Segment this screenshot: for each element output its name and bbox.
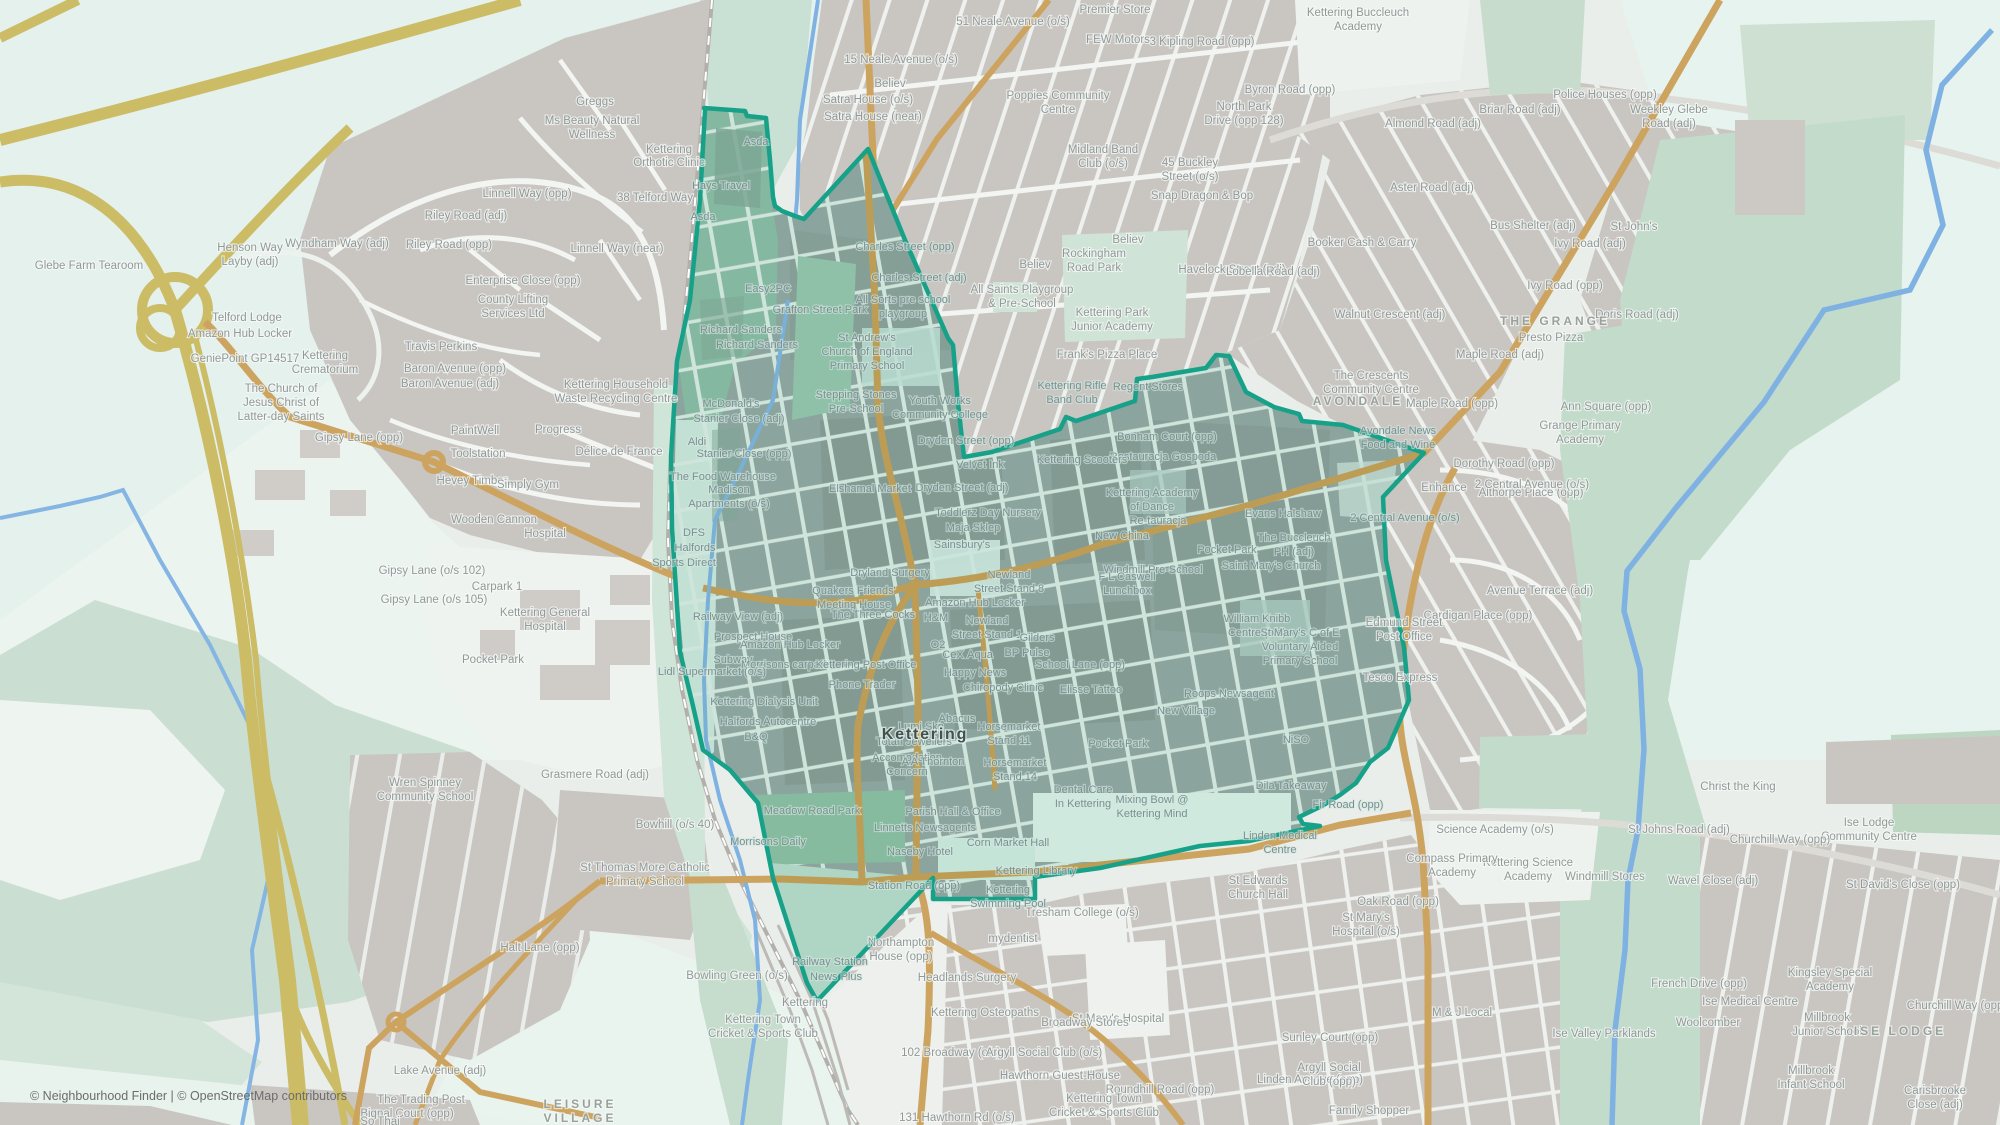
svg-text:Wellness: Wellness (569, 129, 616, 141)
svg-text:North Park: North Park (1217, 101, 1272, 113)
svg-text:Post Office: Post Office (1376, 631, 1432, 643)
svg-text:Gipsy Lane (o/s 105): Gipsy Lane (o/s 105) (381, 594, 488, 606)
svg-text:Oak Road (opp): Oak Road (opp) (1357, 896, 1439, 908)
svg-text:Windmill Stores: Windmill Stores (1565, 871, 1645, 883)
svg-text:Club (opp): Club (opp) (1302, 1076, 1356, 1088)
svg-text:F L Caswell: F L Caswell (1098, 571, 1155, 583)
svg-text:Halt Lane (opp): Halt Lane (opp) (500, 942, 579, 954)
svg-text:Infant School: Infant School (1777, 1079, 1844, 1091)
svg-text:Satra House (o/s): Satra House (o/s) (823, 94, 913, 106)
svg-text:St John's: St John's (1611, 221, 1658, 233)
svg-text:McDonald's: McDonald's (702, 398, 760, 410)
svg-text:Frank's Pizza Place: Frank's Pizza Place (1057, 349, 1158, 361)
svg-text:Kettering: Kettering (882, 726, 968, 743)
svg-text:Drive (opp 128): Drive (opp 128) (1204, 115, 1283, 127)
svg-text:Dila Takeaway: Dila Takeaway (1256, 780, 1327, 792)
svg-text:Club (o/s): Club (o/s) (1078, 158, 1128, 170)
svg-text:Carisbrooke: Carisbrooke (1904, 1085, 1966, 1097)
svg-text:Kettering Post Office: Kettering Post Office (816, 659, 917, 671)
svg-text:Cricket & Sports Club: Cricket & Sports Club (708, 1028, 818, 1040)
svg-text:Sunley Court (opp): Sunley Court (opp) (1282, 1032, 1379, 1044)
svg-text:The Church of: The Church of (245, 383, 319, 395)
svg-text:38 Telford Way: 38 Telford Way (617, 192, 693, 204)
svg-text:Gipsy Lane (o/s 102): Gipsy Lane (o/s 102) (379, 565, 486, 577)
svg-text:Ise Lodge: Ise Lodge (1844, 817, 1895, 829)
svg-text:mydentist: mydentist (988, 933, 1038, 945)
svg-text:Lake Avenue (adj): Lake Avenue (adj) (394, 1065, 487, 1077)
svg-text:Kettering General: Kettering General (500, 607, 590, 619)
svg-text:Premier Store: Premier Store (1080, 4, 1151, 16)
svg-text:Swimming Pool: Swimming Pool (970, 898, 1046, 910)
svg-text:Amazon Hub Locker: Amazon Hub Locker (188, 328, 292, 340)
svg-text:Roops Newsagent: Roops Newsagent (1184, 688, 1274, 700)
svg-text:Centre: Centre (1041, 104, 1076, 116)
svg-text:Walnut Crescent (adj): Walnut Crescent (adj) (1335, 309, 1446, 321)
svg-text:Quakers Friends': Quakers Friends' (812, 585, 895, 597)
svg-text:Headlands Surgery: Headlands Surgery (918, 972, 1017, 984)
svg-text:Services Ltd: Services Ltd (481, 308, 544, 320)
svg-text:Newland: Newland (966, 615, 1009, 627)
svg-text:Believ: Believ (1112, 234, 1144, 246)
svg-text:Close (adj): Close (adj) (1907, 1099, 1963, 1111)
svg-text:Dryden Street (opp): Dryden Street (opp) (918, 435, 1015, 447)
svg-text:Ise Medical Centre: Ise Medical Centre (1702, 996, 1798, 1008)
svg-text:Hays Travel: Hays Travel (692, 180, 750, 192)
svg-text:Churchill Way (opp): Churchill Way (opp) (1730, 834, 1831, 846)
svg-text:Ivy Road (adj): Ivy Road (adj) (1554, 238, 1626, 250)
svg-text:Gipsy Lane (opp): Gipsy Lane (opp) (315, 432, 403, 444)
svg-text:St Mary's: St Mary's (1342, 912, 1390, 924)
svg-text:Hospital: Hospital (524, 621, 566, 633)
svg-text:Stanier Close (adj): Stanier Close (adj) (693, 413, 784, 425)
svg-text:Simply Gym: Simply Gym (497, 479, 559, 491)
svg-text:William Knibb: William Knibb (1224, 613, 1291, 625)
svg-text:Kettering Scooters: Kettering Scooters (1037, 454, 1128, 466)
svg-text:Wyndham Way (adj): Wyndham Way (adj) (285, 238, 389, 250)
svg-text:Glebe Farm Tearoom: Glebe Farm Tearoom (35, 260, 143, 272)
svg-text:Argyll Social Club (o/s): Argyll Social Club (o/s) (986, 1047, 1102, 1059)
svg-text:Weekley Glebe: Weekley Glebe (1630, 104, 1708, 116)
svg-text:Aqua: Aqua (967, 649, 994, 661)
svg-text:Church of England: Church of England (821, 346, 912, 358)
svg-text:Happy News: Happy News (944, 667, 1007, 679)
svg-text:Naseby Hotel: Naseby Hotel (887, 846, 953, 858)
svg-text:2 Central Avenue (o/s): 2 Central Avenue (o/s) (1475, 479, 1589, 491)
svg-text:Ms Beauty Natural: Ms Beauty Natural (545, 115, 640, 127)
svg-text:51 Neale Avenue (o/s): 51 Neale Avenue (o/s) (956, 16, 1070, 28)
svg-text:Argyll Social: Argyll Social (1297, 1062, 1360, 1074)
svg-text:Believ: Believ (874, 78, 906, 90)
svg-text:The Crescents: The Crescents (1334, 370, 1409, 382)
svg-text:Kettering: Kettering (986, 884, 1030, 896)
svg-text:Halfords: Halfords (675, 542, 716, 554)
svg-text:Toolstation: Toolstation (451, 448, 506, 460)
svg-text:Believ: Believ (1019, 259, 1051, 271)
svg-text:Hospital: Hospital (524, 528, 566, 540)
svg-text:Academy: Academy (1504, 871, 1552, 883)
svg-text:Church Hall: Church Hall (1228, 889, 1288, 901)
svg-text:Midland Band: Midland Band (1068, 144, 1138, 156)
svg-text:Halfords Autocentre: Halfords Autocentre (720, 716, 817, 728)
svg-text:& Pre-School: & Pre-School (988, 298, 1056, 310)
svg-text:Avenue Terrace (adj): Avenue Terrace (adj) (1487, 585, 1594, 597)
svg-text:Orthotic Clinic: Orthotic Clinic (633, 157, 705, 169)
svg-text:Snap Dragon & Bop: Snap Dragon & Bop (1151, 190, 1253, 202)
svg-text:St Andrew's: St Andrew's (838, 332, 896, 344)
svg-text:Poppies Community: Poppies Community (1007, 90, 1110, 102)
svg-text:Presto Pizza: Presto Pizza (1519, 332, 1584, 344)
svg-text:Linnell Way (near): Linnell Way (near) (571, 243, 664, 255)
svg-text:St Edwards: St Edwards (1229, 875, 1288, 887)
svg-text:Pre-School: Pre-School (829, 403, 883, 415)
svg-text:Easy2PC: Easy2PC (745, 283, 791, 295)
svg-text:BP Pulse: BP Pulse (1004, 647, 1049, 659)
svg-text:Chiropody Clinic: Chiropody Clinic (963, 682, 1044, 694)
svg-text:Road Park: Road Park (1067, 262, 1122, 274)
svg-text:Street Stand 1: Street Stand 1 (952, 629, 1022, 641)
svg-text:Youth Works: Youth Works (909, 395, 971, 407)
svg-text:New China: New China (1095, 530, 1150, 542)
svg-text:CeX: CeX (942, 649, 964, 661)
svg-text:Grafton Street Park: Grafton Street Park (773, 304, 868, 316)
svg-text:Grasmere Road (adj): Grasmere Road (adj) (541, 769, 649, 781)
svg-text:Bonham Court (opp): Bonham Court (opp) (1117, 431, 1217, 443)
svg-text:Broadway Stores: Broadway Stores (1041, 1017, 1129, 1029)
svg-text:News Plus: News Plus (810, 971, 862, 983)
svg-text:15 Neale Avenue (o/s): 15 Neale Avenue (o/s) (844, 54, 958, 66)
svg-text:Asda: Asda (690, 211, 716, 223)
svg-text:Hawthorn Guest-House: Hawthorn Guest-House (1000, 1070, 1120, 1082)
svg-text:Bowling Green (o/s): Bowling Green (o/s) (686, 970, 788, 982)
svg-text:Aldi: Aldi (688, 436, 706, 448)
svg-text:Travis Perkins: Travis Perkins (405, 341, 478, 353)
svg-text:Street Stand 8: Street Stand 8 (974, 583, 1044, 595)
svg-text:Sainsbury's: Sainsbury's (934, 539, 991, 551)
svg-text:Apartments (o/s): Apartments (o/s) (688, 498, 769, 510)
svg-text:Millbrook: Millbrook (1788, 1065, 1834, 1077)
svg-text:Corn Market Hall: Corn Market Hall (967, 837, 1050, 849)
svg-text:Kettering Rifle: Kettering Rifle (1037, 380, 1106, 392)
svg-text:Lunchbox: Lunchbox (1103, 585, 1151, 597)
svg-text:Grange Primary: Grange Primary (1539, 420, 1620, 432)
svg-text:Henson Way: Henson Way (217, 242, 283, 254)
svg-text:Lobella Road (adj): Lobella Road (adj) (1226, 266, 1320, 278)
svg-text:Street (o/s): Street (o/s) (1162, 171, 1219, 183)
svg-text:Community School: Community School (377, 791, 474, 803)
svg-text:Amazon Hub Locker: Amazon Hub Locker (740, 639, 840, 651)
svg-text:Baron Avenue (opp): Baron Avenue (opp) (404, 363, 506, 375)
svg-text:Wooden Cannon: Wooden Cannon (451, 514, 537, 526)
svg-text:Compass Primary: Compass Primary (1406, 853, 1498, 865)
svg-text:Kettering Osteopaths: Kettering Osteopaths (931, 1007, 1039, 1019)
svg-text:County Lifting: County Lifting (478, 294, 548, 306)
svg-text:Carpark 1: Carpark 1 (472, 581, 523, 593)
svg-text:House (opp): House (opp) (869, 951, 932, 963)
svg-text:Abacus: Abacus (939, 713, 976, 725)
svg-text:Horsemarket: Horsemarket (978, 721, 1041, 733)
svg-text:All Sorts pre school: All Sorts pre school (856, 294, 951, 306)
svg-text:Stepping Stones: Stepping Stones (816, 389, 897, 401)
svg-text:Aster Road (adj): Aster Road (adj) (1390, 182, 1474, 194)
svg-text:Maja Sklep: Maja Sklep (946, 522, 1000, 534)
svg-text:Almond Road (adj): Almond Road (adj) (1385, 118, 1481, 130)
svg-text:Kettering: Kettering (646, 144, 692, 156)
svg-text:Morrisons Daily: Morrisons Daily (730, 836, 806, 848)
svg-text:Progress: Progress (535, 424, 581, 436)
svg-text:FEW Motors: FEW Motors (1086, 34, 1150, 46)
svg-text:St David's Close (opp): St David's Close (opp) (1846, 879, 1960, 891)
svg-text:French Drive (opp): French Drive (opp) (1651, 978, 1747, 990)
svg-text:The Food Warehouse: The Food Warehouse (670, 471, 776, 483)
svg-text:St Johns Road (adj): St Johns Road (adj) (1628, 824, 1730, 836)
svg-text:Dental Care: Dental Care (1054, 784, 1113, 796)
svg-text:Baron Avenue (adj): Baron Avenue (adj) (401, 378, 499, 390)
svg-text:PaintWell: PaintWell (451, 425, 499, 437)
svg-text:Velvet Ink: Velvet Ink (956, 459, 1004, 471)
svg-text:Wren Spinney: Wren Spinney (389, 777, 461, 789)
svg-text:M & J Local: M & J Local (1432, 1007, 1492, 1019)
svg-text:Stand 11: Stand 11 (987, 735, 1030, 747)
svg-text:45 Buckley: 45 Buckley (1162, 157, 1219, 169)
svg-text:Charles Street (adj): Charles Street (adj) (871, 272, 966, 284)
svg-text:Horsemarket: Horsemarket (984, 757, 1047, 769)
svg-text:Railway Station: Railway Station (792, 956, 868, 968)
svg-text:Academy: Academy (1334, 21, 1382, 33)
svg-text:Edmund Street: Edmund Street (1366, 617, 1444, 629)
svg-text:Bus Shelter (adj): Bus Shelter (adj) (1490, 220, 1576, 232)
svg-text:Enhance: Enhance (1421, 482, 1466, 494)
svg-text:Junior School: Junior School (1792, 1026, 1862, 1038)
svg-text:Booker Cash & Carry: Booker Cash & Carry (1308, 237, 1417, 249)
svg-text:New Village: New Village (1157, 705, 1215, 717)
svg-text:Millbrook: Millbrook (1804, 1012, 1850, 1024)
svg-text:THE GRANGE: THE GRANGE (1500, 314, 1610, 328)
svg-text:Band Club: Band Club (1046, 394, 1097, 406)
svg-text:Voluntary Aided: Voluntary Aided (1262, 641, 1338, 653)
svg-text:Kettering Mind: Kettering Mind (1117, 808, 1188, 820)
svg-text:of Dance: of Dance (1130, 501, 1174, 513)
svg-text:Science Academy (o/s): Science Academy (o/s) (1436, 824, 1554, 836)
svg-text:Northampton: Northampton (868, 937, 934, 949)
svg-text:Primary School: Primary School (1263, 655, 1338, 667)
svg-text:Kingsley Special: Kingsley Special (1788, 967, 1872, 979)
svg-text:AVONDALE: AVONDALE (1313, 394, 1403, 408)
svg-text:Saint Mary's Church: Saint Mary's Church (1222, 560, 1321, 572)
svg-text:Maple Road (opp): Maple Road (opp) (1406, 398, 1498, 410)
svg-text:H&M: H&M (924, 612, 948, 624)
svg-text:Wavel Close (adj): Wavel Close (adj) (1668, 875, 1758, 887)
svg-text:131 Hawthorn Rd (o/s): 131 Hawthorn Rd (o/s) (899, 1112, 1015, 1124)
svg-text:Parish Hall & Office: Parish Hall & Office (905, 806, 1000, 818)
svg-text:Kettering: Kettering (782, 997, 828, 1009)
svg-text:The Trading Post: The Trading Post (377, 1094, 465, 1106)
svg-text:Kettering Household: Kettering Household (564, 379, 668, 391)
svg-text:LEISURE: LEISURE (543, 1097, 616, 1111)
svg-text:Academy: Academy (1428, 867, 1476, 879)
svg-text:Satra House (near): Satra House (near) (824, 111, 922, 123)
svg-text:Kettering Buccleuch: Kettering Buccleuch (1307, 7, 1409, 19)
svg-text:Churchill Way (opp): Churchill Way (opp) (1907, 1000, 2000, 1012)
svg-text:Sports Direct: Sports Direct (652, 557, 716, 569)
svg-text:Telford Lodge: Telford Lodge (212, 312, 282, 324)
svg-text:Tesco Express: Tesco Express (1363, 672, 1438, 684)
svg-text:Greggs: Greggs (576, 96, 614, 108)
svg-text:Academy: Academy (1806, 981, 1854, 993)
svg-text:Regent Stores: Regent Stores (1113, 381, 1184, 393)
svg-text:Latter-day Saints: Latter-day Saints (238, 411, 325, 423)
svg-text:Dryden Street (adj): Dryden Street (adj) (916, 482, 1009, 494)
svg-text:Bowhill (o/s 40): Bowhill (o/s 40) (636, 819, 715, 831)
svg-text:Centre: Centre (1263, 844, 1296, 856)
svg-text:Stanier Close (opp): Stanier Close (opp) (697, 448, 792, 460)
svg-text:Jesus Christ of: Jesus Christ of (243, 397, 320, 409)
svg-text:Pocket Park: Pocket Park (1197, 544, 1257, 556)
svg-text:Kettering Park: Kettering Park (1076, 307, 1149, 319)
svg-text:Kettering Town: Kettering Town (725, 1014, 801, 1026)
svg-text:NiSO: NiSO (1283, 734, 1310, 746)
svg-text:Enterprise Close (opp): Enterprise Close (opp) (465, 275, 580, 287)
svg-text:All Saints Playgroup: All Saints Playgroup (971, 284, 1074, 296)
svg-text:Fir Road (opp): Fir Road (opp) (1313, 799, 1384, 811)
svg-text:Crematorium: Crematorium (292, 364, 358, 376)
svg-text:2 Central Avenue (o/s): 2 Central Avenue (o/s) (1350, 512, 1459, 524)
svg-text:Family Shopper: Family Shopper (1329, 1105, 1410, 1117)
svg-text:Richard Sanders: Richard Sanders (700, 324, 782, 336)
svg-text:Briar Road (adj): Briar Road (adj) (1479, 104, 1560, 116)
svg-text:Lidl Supermarket (o/s): Lidl Supermarket (o/s) (658, 666, 766, 678)
svg-text:A A Thornton: A A Thornton (902, 756, 965, 768)
svg-text:So Thai: So Thai (360, 1116, 399, 1125)
svg-text:Byron Road (opp): Byron Road (opp) (1245, 84, 1336, 96)
svg-text:Kettering: Kettering (302, 350, 348, 362)
svg-text:Amazon Hub Locker: Amazon Hub Locker (925, 597, 1025, 609)
svg-text:Pocket Park: Pocket Park (1088, 738, 1148, 750)
svg-text:St Mary's C of E: St Mary's C of E (1260, 627, 1339, 639)
svg-text:Avondale News: Avondale News (1360, 425, 1437, 437)
svg-text:Rockingham: Rockingham (1062, 248, 1126, 260)
svg-text:Kettering Academy: Kettering Academy (1106, 487, 1199, 499)
svg-text:Kettering Dialysis Unit: Kettering Dialysis Unit (710, 696, 818, 708)
svg-text:Hospital (o/s): Hospital (o/s) (1332, 926, 1400, 938)
svg-text:Mixing Bowl @: Mixing Bowl @ (1116, 794, 1189, 806)
svg-text:Woolcomber: Woolcomber (1676, 1017, 1741, 1029)
svg-text:Linnetts Newsagents: Linnetts Newsagents (874, 822, 977, 834)
svg-text:The Buccleuch: The Buccleuch (1258, 532, 1331, 544)
svg-text:In Kettering: In Kettering (1055, 798, 1111, 810)
svg-text:School Lane (opp): School Lane (opp) (1035, 659, 1125, 671)
svg-text:Ise Valley Parklands: Ise Valley Parklands (1552, 1028, 1656, 1040)
svg-text:Police Houses (opp): Police Houses (opp) (1553, 89, 1657, 101)
svg-text:Toddlerz Day Nursery: Toddlerz Day Nursery (935, 507, 1041, 519)
svg-text:Evans Halshaw: Evans Halshaw (1245, 508, 1321, 520)
svg-text:Community Centre: Community Centre (1821, 831, 1917, 843)
svg-text:Délice de France: Délice de France (576, 446, 663, 458)
svg-text:Elisse Tattoo: Elisse Tattoo (1060, 684, 1122, 696)
svg-text:Dorothy Road (opp): Dorothy Road (opp) (1454, 458, 1555, 470)
svg-text:Maple Road (adj): Maple Road (adj) (1456, 349, 1544, 361)
svg-text:Station Road (opp): Station Road (opp) (868, 880, 960, 892)
svg-text:Kettering Library: Kettering Library (996, 865, 1077, 877)
svg-text:Academy: Academy (1556, 434, 1604, 446)
svg-text:Ivy Road (opp): Ivy Road (opp) (1527, 280, 1603, 292)
svg-text:Ann Square (opp): Ann Square (opp) (1561, 401, 1652, 413)
svg-text:Charles Street (opp): Charles Street (opp) (855, 241, 954, 253)
svg-text:Kettering Town: Kettering Town (1066, 1093, 1142, 1105)
svg-text:Primary School: Primary School (606, 876, 684, 888)
svg-text:Gilders: Gilders (1020, 632, 1055, 644)
svg-text:Road (adj): Road (adj) (1642, 118, 1696, 130)
svg-text:Christ the King: Christ the King (1700, 781, 1775, 793)
svg-text:Phone Trader: Phone Trader (829, 679, 896, 691)
svg-text:playgroup: playgroup (879, 308, 927, 320)
svg-text:Linden Medical: Linden Medical (1243, 830, 1317, 842)
svg-text:The Three Cocks: The Three Cocks (831, 609, 916, 621)
svg-text:Newland: Newland (988, 569, 1031, 581)
svg-text:© Neighbourhood Finder | © Ope: © Neighbourhood Finder | © OpenStreetMap… (30, 1089, 347, 1103)
svg-text:Food and Wine: Food and Wine (1361, 439, 1436, 451)
svg-text:B&Q: B&Q (744, 731, 768, 743)
svg-text:Stand 14: Stand 14 (993, 771, 1037, 783)
svg-text:Primary School: Primary School (830, 360, 905, 372)
svg-text:Layby (adj): Layby (adj) (222, 256, 279, 268)
svg-text:Junior Academy: Junior Academy (1071, 321, 1153, 333)
svg-text:VILLAGE: VILLAGE (543, 1111, 616, 1125)
svg-text:Linnell Way (opp): Linnell Way (opp) (482, 188, 571, 200)
svg-text:Cricket & Sports Club: Cricket & Sports Club (1049, 1107, 1159, 1119)
svg-text:Meadow Road Park: Meadow Road Park (764, 805, 861, 817)
svg-text:Asda: Asda (743, 136, 769, 148)
svg-text:Pocket Park: Pocket Park (462, 654, 524, 666)
svg-text:Community College: Community College (892, 409, 988, 421)
svg-text:Elshamal Market: Elshamal Market (829, 483, 911, 495)
svg-text:PH (adj): PH (adj) (1274, 546, 1314, 558)
svg-text:GeniePoint GP14517: GeniePoint GP14517 (191, 353, 300, 365)
svg-text:Dryland Surgery: Dryland Surgery (850, 567, 930, 579)
svg-text:Richard Sanders: Richard Sanders (716, 339, 798, 351)
svg-text:Madison: Madison (708, 484, 750, 496)
svg-text:Waste Recycling Centre: Waste Recycling Centre (555, 393, 678, 405)
svg-text:ISE LODGE: ISE LODGE (1854, 1024, 1946, 1038)
svg-text:St Thomas More Catholic: St Thomas More Catholic (580, 862, 710, 874)
svg-text:Riley Road (opp): Riley Road (opp) (406, 239, 492, 251)
svg-text:DFS: DFS (683, 527, 705, 539)
svg-text:Railway View (adj): Railway View (adj) (693, 611, 783, 623)
svg-text:Riley Road (adj): Riley Road (adj) (425, 210, 508, 222)
svg-text:3 Kipling Road (opp): 3 Kipling Road (opp) (1150, 36, 1255, 48)
svg-text:Re-tauracja: Re-tauracja (1130, 515, 1188, 527)
